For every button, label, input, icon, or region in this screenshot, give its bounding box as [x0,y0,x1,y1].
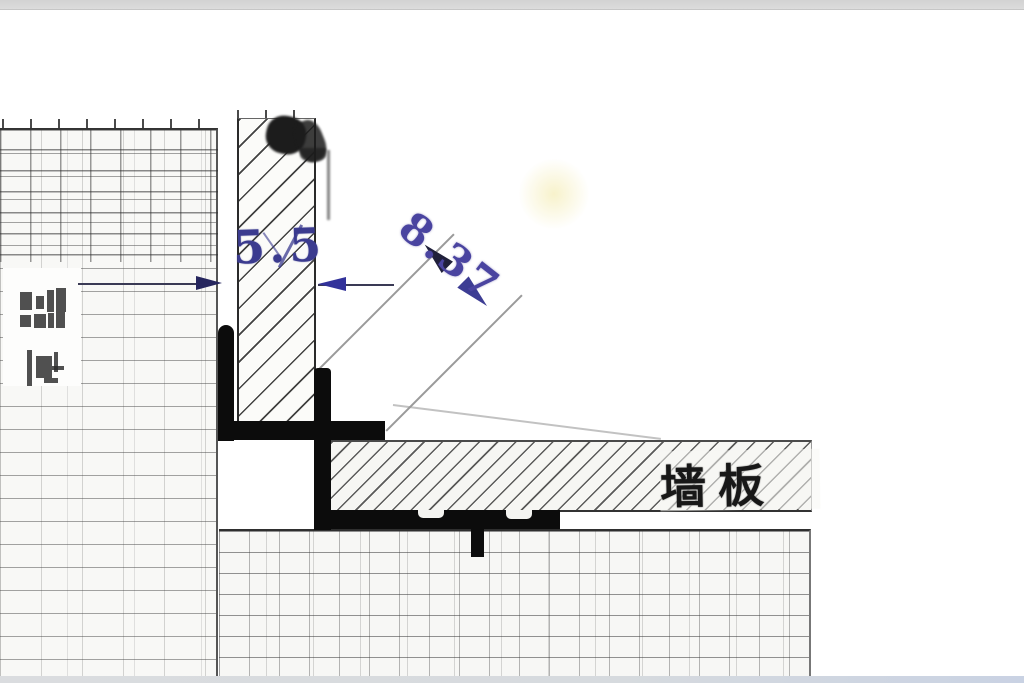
wall-stamp-patch [3,268,81,386]
stamp-glyph [48,313,54,328]
trim-profile-right-leg [314,368,331,530]
dim-arrow-right-pointing [196,276,222,290]
wall-panel-label: 墙板 [659,449,820,512]
trim-profile-top-bar [218,421,385,440]
scan-bottom-gray-band [0,676,1024,683]
dimension-value-profile-diagonal: 8.37 [390,202,510,311]
dim-line-left-segment [78,283,200,285]
scan-top-gray-bar [0,0,1024,10]
stamp-glyph [47,290,54,312]
ink-smudge [300,148,326,162]
stamp-glyph [34,314,46,328]
stamp-glyph [20,292,32,310]
paper-stain [518,158,590,230]
ink-smudge [327,150,330,220]
scanned-drawing-page: 5.5 8.37 墙板 [0,0,1024,683]
stamp-glyph [36,356,52,378]
stamp-glyph [20,315,31,327]
dim-arrow-left-pointing [318,277,346,291]
faint-construction-line [393,404,661,439]
stamp-glyph [56,288,66,312]
profile-notch [418,510,444,518]
profile-notch [506,510,532,519]
stamp-glyph [27,350,32,386]
stamp-glyph [44,378,58,383]
trim-profile-anchor-tab [471,529,484,557]
tiled-wall-dense-grid-top [0,128,218,262]
hatched-column [237,118,316,440]
stamp-glyph [36,296,44,309]
stamp-glyph [52,366,64,370]
stamp-glyph [56,312,65,328]
corner-gap [219,438,315,529]
tiled-floor [219,529,811,678]
